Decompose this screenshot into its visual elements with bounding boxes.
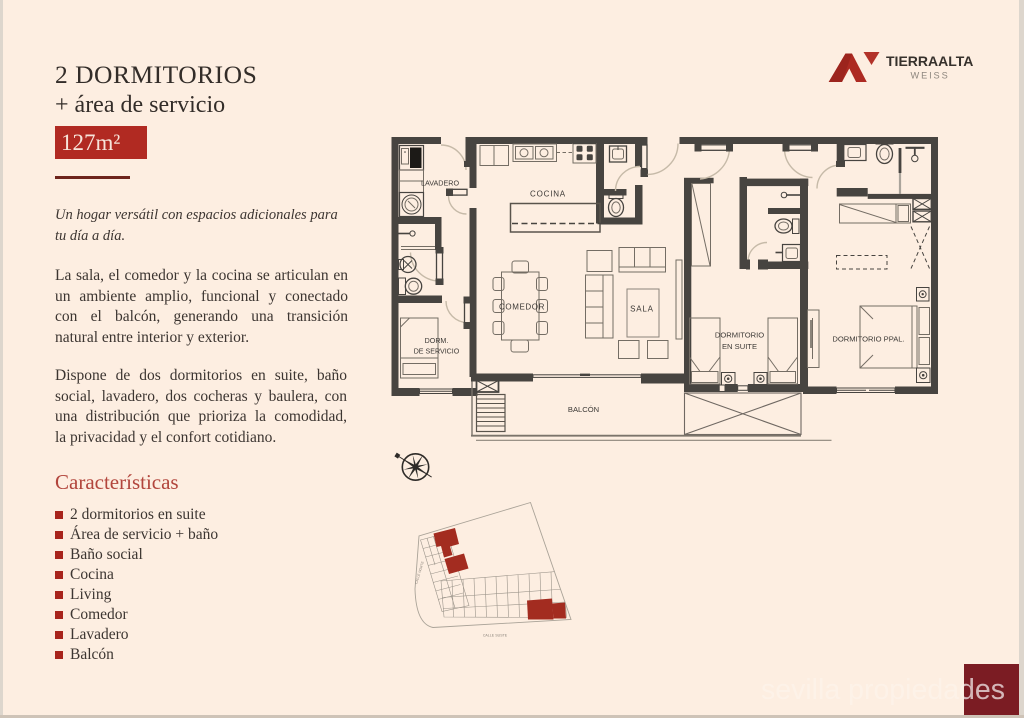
svg-text:BALCÓN: BALCÓN	[568, 405, 599, 414]
svg-text:EN SUITE: EN SUITE	[722, 342, 757, 351]
svg-text:DORMITORIO PPAL.: DORMITORIO PPAL.	[832, 335, 904, 344]
svg-text:TIERRAALTA: TIERRAALTA	[886, 53, 973, 69]
svg-text:DORM.: DORM.	[425, 337, 449, 345]
svg-text:WEISS: WEISS	[911, 71, 950, 81]
svg-text:DE SERVICIO: DE SERVICIO	[414, 348, 460, 356]
svg-text:LAVADERO: LAVADERO	[421, 179, 459, 188]
svg-text:COMEDOR: COMEDOR	[499, 303, 545, 312]
svg-text:DORMITORIO: DORMITORIO	[715, 331, 764, 340]
svg-text:CALLE SUSTE: CALLE SUSTE	[483, 634, 508, 638]
svg-text:SALA: SALA	[630, 305, 654, 314]
svg-text:COCINA: COCINA	[530, 190, 566, 199]
